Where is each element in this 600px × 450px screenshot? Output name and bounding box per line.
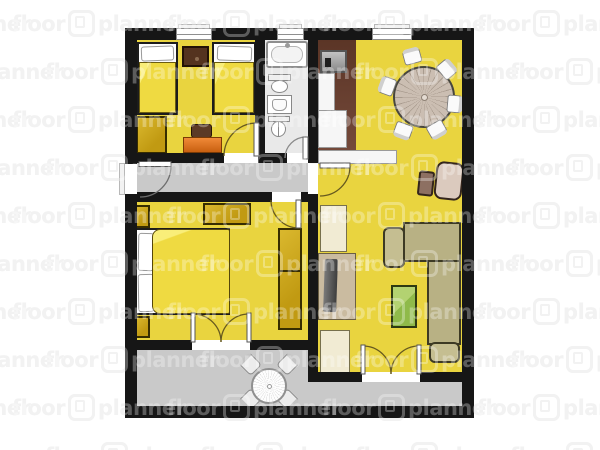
watermark-tile: floorplanner <box>510 58 600 85</box>
watermark-word-planner: planner <box>253 108 340 132</box>
watermark-word-planner: planner <box>0 444 63 450</box>
watermark-word-planner: planner <box>441 60 528 84</box>
logo-chair-glyph <box>75 16 85 28</box>
logo-chair-glyph <box>385 112 395 124</box>
watermark-word-planner: planner <box>131 252 218 276</box>
logo-chair-glyph <box>540 16 550 28</box>
floorplanner-logo-icon <box>533 202 560 229</box>
watermark-word-planner: planner <box>596 252 600 276</box>
logo-chair-glyph <box>263 352 273 364</box>
watermark-word-planner: planner <box>253 204 340 228</box>
watermark-tile: floorplanner <box>0 346 63 373</box>
floorplanner-logo-icon <box>533 10 560 37</box>
watermark-word-floor: floor <box>167 396 220 420</box>
watermark-word-floor: floor <box>12 396 65 420</box>
logo-chair-glyph <box>75 400 85 412</box>
logo-chair-glyph <box>108 160 118 172</box>
watermark-tile: floorplanner <box>322 394 495 421</box>
watermark-tile: floorplanner <box>0 10 30 37</box>
logo-chair-glyph <box>385 400 395 412</box>
floorplanner-logo-icon <box>566 346 593 373</box>
logo-chair-glyph <box>108 256 118 268</box>
watermark-tile: floorplanner <box>12 298 185 325</box>
watermark-word-planner: planner <box>408 396 495 420</box>
logo-chair-glyph <box>230 112 240 124</box>
watermark-word-floor: floor <box>167 108 220 132</box>
watermark-tile: floorplanner <box>322 202 495 229</box>
watermark-word-floor: floor <box>477 300 530 324</box>
floorplan-canvas: floorplannerfloorplannerfloorplannerfloo… <box>0 0 600 450</box>
watermark-word-planner: planner <box>253 12 340 36</box>
watermark-word-planner: planner <box>131 156 218 180</box>
watermark-word-floor: floor <box>322 396 375 420</box>
watermark-word-planner: planner <box>441 348 528 372</box>
watermark-tile: floorplanner <box>0 442 63 450</box>
logo-chair-glyph <box>573 160 583 172</box>
watermark-tile: floorplanner <box>167 10 340 37</box>
watermark-tile: floorplanner <box>0 202 30 229</box>
watermark-word-planner: planner <box>286 156 373 180</box>
watermark-tile: floorplanner <box>0 250 63 277</box>
logo-chair-glyph <box>385 16 395 28</box>
watermark-word-floor: floor <box>510 444 563 450</box>
logo-chair-glyph <box>418 160 428 172</box>
watermark-word-planner: planner <box>0 252 63 276</box>
watermark-word-floor: floor <box>510 156 563 180</box>
watermark-word-floor: floor <box>200 60 253 84</box>
logo-chair-glyph <box>263 160 273 172</box>
watermark-tile: floorplanner <box>510 154 600 181</box>
logo-chair-glyph <box>230 400 240 412</box>
floorplanner-logo-icon <box>566 58 593 85</box>
watermark-tile: floorplanner <box>200 58 373 85</box>
watermark-word-planner: planner <box>286 252 373 276</box>
watermark-word-planner: planner <box>286 60 373 84</box>
watermark-tile: floorplanner <box>355 58 528 85</box>
watermark-word-floor: floor <box>355 348 408 372</box>
watermark-word-floor: floor <box>510 348 563 372</box>
floorplanner-logo-icon <box>411 442 438 450</box>
watermark-word-floor: floor <box>12 108 65 132</box>
floorplanner-logo-icon <box>101 154 128 181</box>
watermark-word-floor: floor <box>45 252 98 276</box>
floorplanner-logo-icon <box>411 58 438 85</box>
watermark-tile: floorplanner <box>355 250 528 277</box>
watermark-word-floor: floor <box>200 156 253 180</box>
watermark-word-planner: planner <box>98 108 185 132</box>
watermark-word-floor: floor <box>322 12 375 36</box>
watermark-tile: floorplanner <box>200 154 373 181</box>
watermark-tile: floorplanner <box>477 202 600 229</box>
logo-chair-glyph <box>75 112 85 124</box>
watermark-word-floor: floor <box>200 444 253 450</box>
watermark-tile: floorplanner <box>167 202 340 229</box>
logo-chair-glyph <box>108 352 118 364</box>
logo-chair-glyph <box>573 256 583 268</box>
watermark-word-planner: planner <box>0 12 30 36</box>
watermark-tile: floorplanner <box>12 10 185 37</box>
watermark-word-planner: planner <box>563 12 600 36</box>
logo-chair-glyph <box>418 64 428 76</box>
watermark-word-planner: planner <box>0 108 30 132</box>
watermark-word-planner: planner <box>0 60 63 84</box>
floorplanner-logo-icon <box>68 298 95 325</box>
watermark-word-planner: planner <box>98 300 185 324</box>
floorplanner-logo-icon <box>101 58 128 85</box>
floorplanner-logo-icon <box>533 394 560 421</box>
watermark-word-floor: floor <box>355 444 408 450</box>
floorplanner-logo-icon <box>533 298 560 325</box>
floorplanner-logo-icon <box>101 442 128 450</box>
watermark-tile: floorplanner <box>45 154 218 181</box>
watermark-word-floor: floor <box>167 300 220 324</box>
watermark-word-planner: planner <box>131 60 218 84</box>
watermark-word-floor: floor <box>477 204 530 228</box>
logo-chair-glyph <box>263 64 273 76</box>
floorplanner-logo-icon <box>411 250 438 277</box>
logo-chair-glyph <box>418 256 428 268</box>
watermark-tile: floorplanner <box>510 250 600 277</box>
watermark-word-planner: planner <box>0 156 63 180</box>
watermark-tile: floorplanner <box>0 298 30 325</box>
watermark-word-planner: planner <box>563 300 600 324</box>
watermark-word-planner: planner <box>563 396 600 420</box>
watermark-tile: floorplanner <box>12 106 185 133</box>
logo-chair-glyph <box>540 208 550 220</box>
floorplanner-logo-icon <box>256 154 283 181</box>
floorplanner-logo-icon <box>378 298 405 325</box>
watermark-word-planner: planner <box>563 108 600 132</box>
watermark-word-floor: floor <box>322 204 375 228</box>
floorplanner-logo-icon <box>566 154 593 181</box>
watermark-word-planner: planner <box>98 396 185 420</box>
logo-chair-glyph <box>385 304 395 316</box>
watermark-word-planner: planner <box>408 204 495 228</box>
watermark-tile: floorplanner <box>510 442 600 450</box>
watermark-tile: floorplanner <box>45 442 218 450</box>
floorplanner-logo-icon <box>68 10 95 37</box>
watermark-tile: floorplanner <box>477 298 600 325</box>
watermark-word-planner: planner <box>441 156 528 180</box>
watermark-tile: floorplanner <box>167 298 340 325</box>
watermark-word-planner: planner <box>286 444 373 450</box>
logo-chair-glyph <box>540 400 550 412</box>
watermark-word-floor: floor <box>45 156 98 180</box>
logo-chair-glyph <box>263 256 273 268</box>
watermark-word-floor: floor <box>12 300 65 324</box>
floorplanner-logo-icon <box>68 106 95 133</box>
watermark-word-floor: floor <box>200 348 253 372</box>
watermark-word-floor: floor <box>45 60 98 84</box>
floorplanner-logo-icon <box>223 394 250 421</box>
logo-chair-glyph <box>540 304 550 316</box>
floorplanner-logo-icon <box>68 394 95 421</box>
watermark-tile: floorplanner <box>0 106 30 133</box>
watermark-word-planner: planner <box>286 348 373 372</box>
watermark-tile: floorplanner <box>355 346 528 373</box>
watermark-word-planner: planner <box>131 348 218 372</box>
watermark-word-floor: floor <box>477 108 530 132</box>
watermark-word-planner: planner <box>0 396 30 420</box>
logo-chair-glyph <box>573 64 583 76</box>
watermark-word-floor: floor <box>355 156 408 180</box>
watermark-word-floor: floor <box>510 60 563 84</box>
logo-chair-glyph <box>418 352 428 364</box>
watermark-word-floor: floor <box>167 204 220 228</box>
watermark-word-planner: planner <box>408 300 495 324</box>
watermark-layer-over: floorplannerfloorplannerfloorplannerfloo… <box>0 0 600 450</box>
floorplanner-logo-icon <box>411 346 438 373</box>
watermark-tile: floorplanner <box>45 346 218 373</box>
watermark-tile: floorplanner <box>12 394 185 421</box>
watermark-word-planner: planner <box>98 204 185 228</box>
watermark-tile: floorplanner <box>322 10 495 37</box>
watermark-word-floor: floor <box>167 12 220 36</box>
floorplanner-logo-icon <box>256 58 283 85</box>
watermark-word-planner: planner <box>253 300 340 324</box>
floorplanner-logo-icon <box>533 106 560 133</box>
watermark-tile: floorplanner <box>477 394 600 421</box>
watermark-word-floor: floor <box>477 12 530 36</box>
watermark-word-planner: planner <box>441 252 528 276</box>
watermark-word-planner: planner <box>596 444 600 450</box>
watermark-tile: floorplanner <box>167 394 340 421</box>
watermark-tile: floorplanner <box>510 346 600 373</box>
floorplanner-logo-icon <box>411 154 438 181</box>
watermark-word-planner: planner <box>98 12 185 36</box>
logo-chair-glyph <box>573 352 583 364</box>
watermark-word-floor: floor <box>477 396 530 420</box>
watermark-tile: floorplanner <box>477 10 600 37</box>
watermark-word-floor: floor <box>355 252 408 276</box>
watermark-tile: floorplanner <box>200 250 373 277</box>
watermark-tile: floorplanner <box>167 106 340 133</box>
watermark-word-floor: floor <box>45 348 98 372</box>
floorplanner-logo-icon <box>223 298 250 325</box>
watermark-tile: floorplanner <box>45 250 218 277</box>
watermark-word-planner: planner <box>596 156 600 180</box>
watermark-word-floor: floor <box>12 204 65 228</box>
watermark-tile: floorplanner <box>200 442 373 450</box>
watermark-word-planner: planner <box>596 348 600 372</box>
floorplanner-logo-icon <box>101 346 128 373</box>
watermark-tile: floorplanner <box>0 394 30 421</box>
logo-chair-glyph <box>108 64 118 76</box>
floorplanner-logo-icon <box>68 202 95 229</box>
watermark-word-planner: planner <box>408 12 495 36</box>
watermark-tile: floorplanner <box>477 106 600 133</box>
watermark-word-planner: planner <box>0 348 63 372</box>
floorplanner-logo-icon <box>101 250 128 277</box>
watermark-word-floor: floor <box>355 60 408 84</box>
watermark-word-floor: floor <box>322 300 375 324</box>
logo-chair-glyph <box>385 208 395 220</box>
floorplanner-logo-icon <box>566 442 593 450</box>
watermark-word-floor: floor <box>510 252 563 276</box>
watermark-word-planner: planner <box>441 444 528 450</box>
watermark-word-planner: planner <box>131 444 218 450</box>
watermark-tile: floorplanner <box>322 298 495 325</box>
floorplanner-logo-icon <box>223 10 250 37</box>
logo-chair-glyph <box>75 304 85 316</box>
watermark-word-planner: planner <box>408 108 495 132</box>
floorplanner-logo-icon <box>378 106 405 133</box>
watermark-word-planner: planner <box>0 300 30 324</box>
floorplanner-logo-icon <box>256 442 283 450</box>
floorplanner-logo-icon <box>378 202 405 229</box>
watermark-word-floor: floor <box>322 108 375 132</box>
watermark-tile: floorplanner <box>200 346 373 373</box>
watermark-word-planner: planner <box>563 204 600 228</box>
floorplanner-logo-icon <box>256 346 283 373</box>
floorplanner-logo-icon <box>378 394 405 421</box>
logo-chair-glyph <box>230 304 240 316</box>
floorplanner-logo-icon <box>566 250 593 277</box>
watermark-tile: floorplanner <box>355 154 528 181</box>
watermark-tile: floorplanner <box>322 106 495 133</box>
logo-chair-glyph <box>75 208 85 220</box>
logo-chair-glyph <box>540 112 550 124</box>
floorplanner-logo-icon <box>223 202 250 229</box>
watermark-word-planner: planner <box>253 396 340 420</box>
watermark-tile: floorplanner <box>0 154 63 181</box>
watermark-word-floor: floor <box>12 12 65 36</box>
watermark-tile: floorplanner <box>12 202 185 229</box>
watermark-tile: floorplanner <box>355 442 528 450</box>
watermark-word-floor: floor <box>200 252 253 276</box>
floorplanner-logo-icon <box>223 106 250 133</box>
logo-chair-glyph <box>230 16 240 28</box>
floorplanner-logo-icon <box>378 10 405 37</box>
floorplanner-logo-icon <box>256 250 283 277</box>
watermark-word-planner: planner <box>596 60 600 84</box>
logo-chair-glyph <box>230 208 240 220</box>
watermark-tile: floorplanner <box>0 58 63 85</box>
watermark-word-planner: planner <box>0 204 30 228</box>
watermark-tile: floorplanner <box>45 58 218 85</box>
watermark-word-floor: floor <box>45 444 98 450</box>
